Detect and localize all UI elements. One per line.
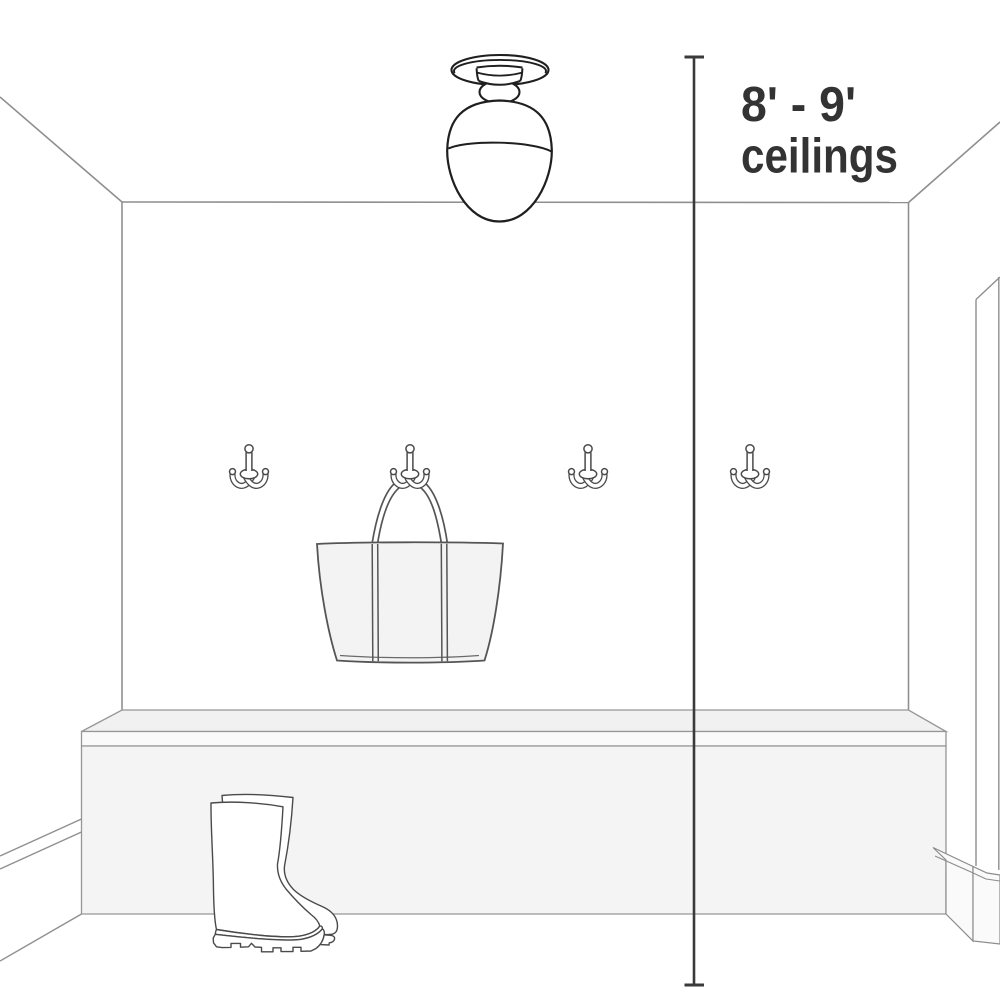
svg-text:ceilings: ceilings (741, 130, 898, 184)
svg-text:8' - 9': 8' - 9' (741, 78, 856, 132)
